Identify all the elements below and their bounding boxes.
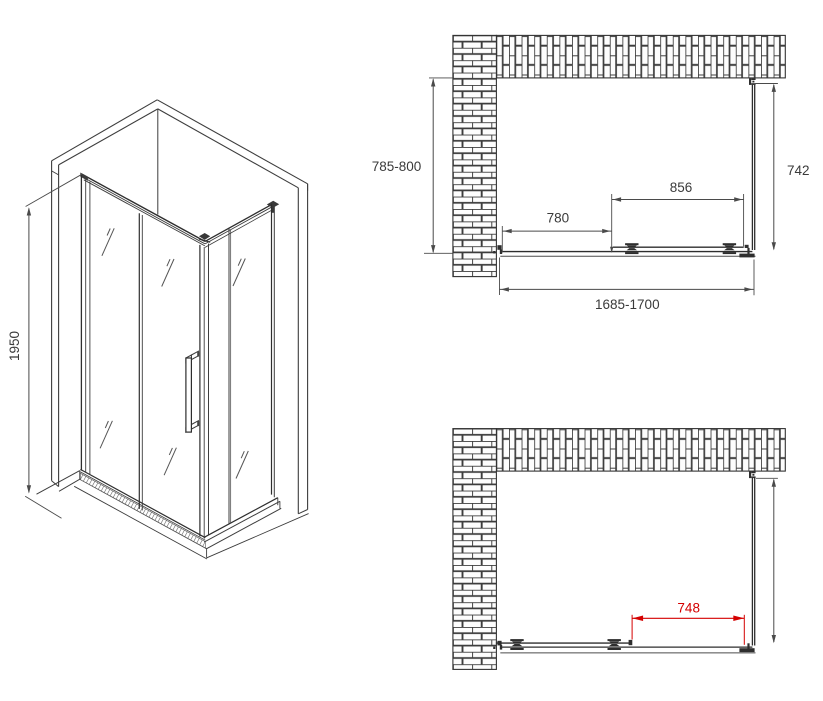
svg-text:1685-1700: 1685-1700 xyxy=(595,297,660,312)
svg-text:780: 780 xyxy=(547,210,570,225)
svg-text:1950: 1950 xyxy=(7,331,22,361)
svg-text:785-800: 785-800 xyxy=(372,159,422,174)
svg-text:856: 856 xyxy=(670,180,693,195)
svg-text:748: 748 xyxy=(677,601,700,616)
svg-text:742: 742 xyxy=(787,163,810,178)
